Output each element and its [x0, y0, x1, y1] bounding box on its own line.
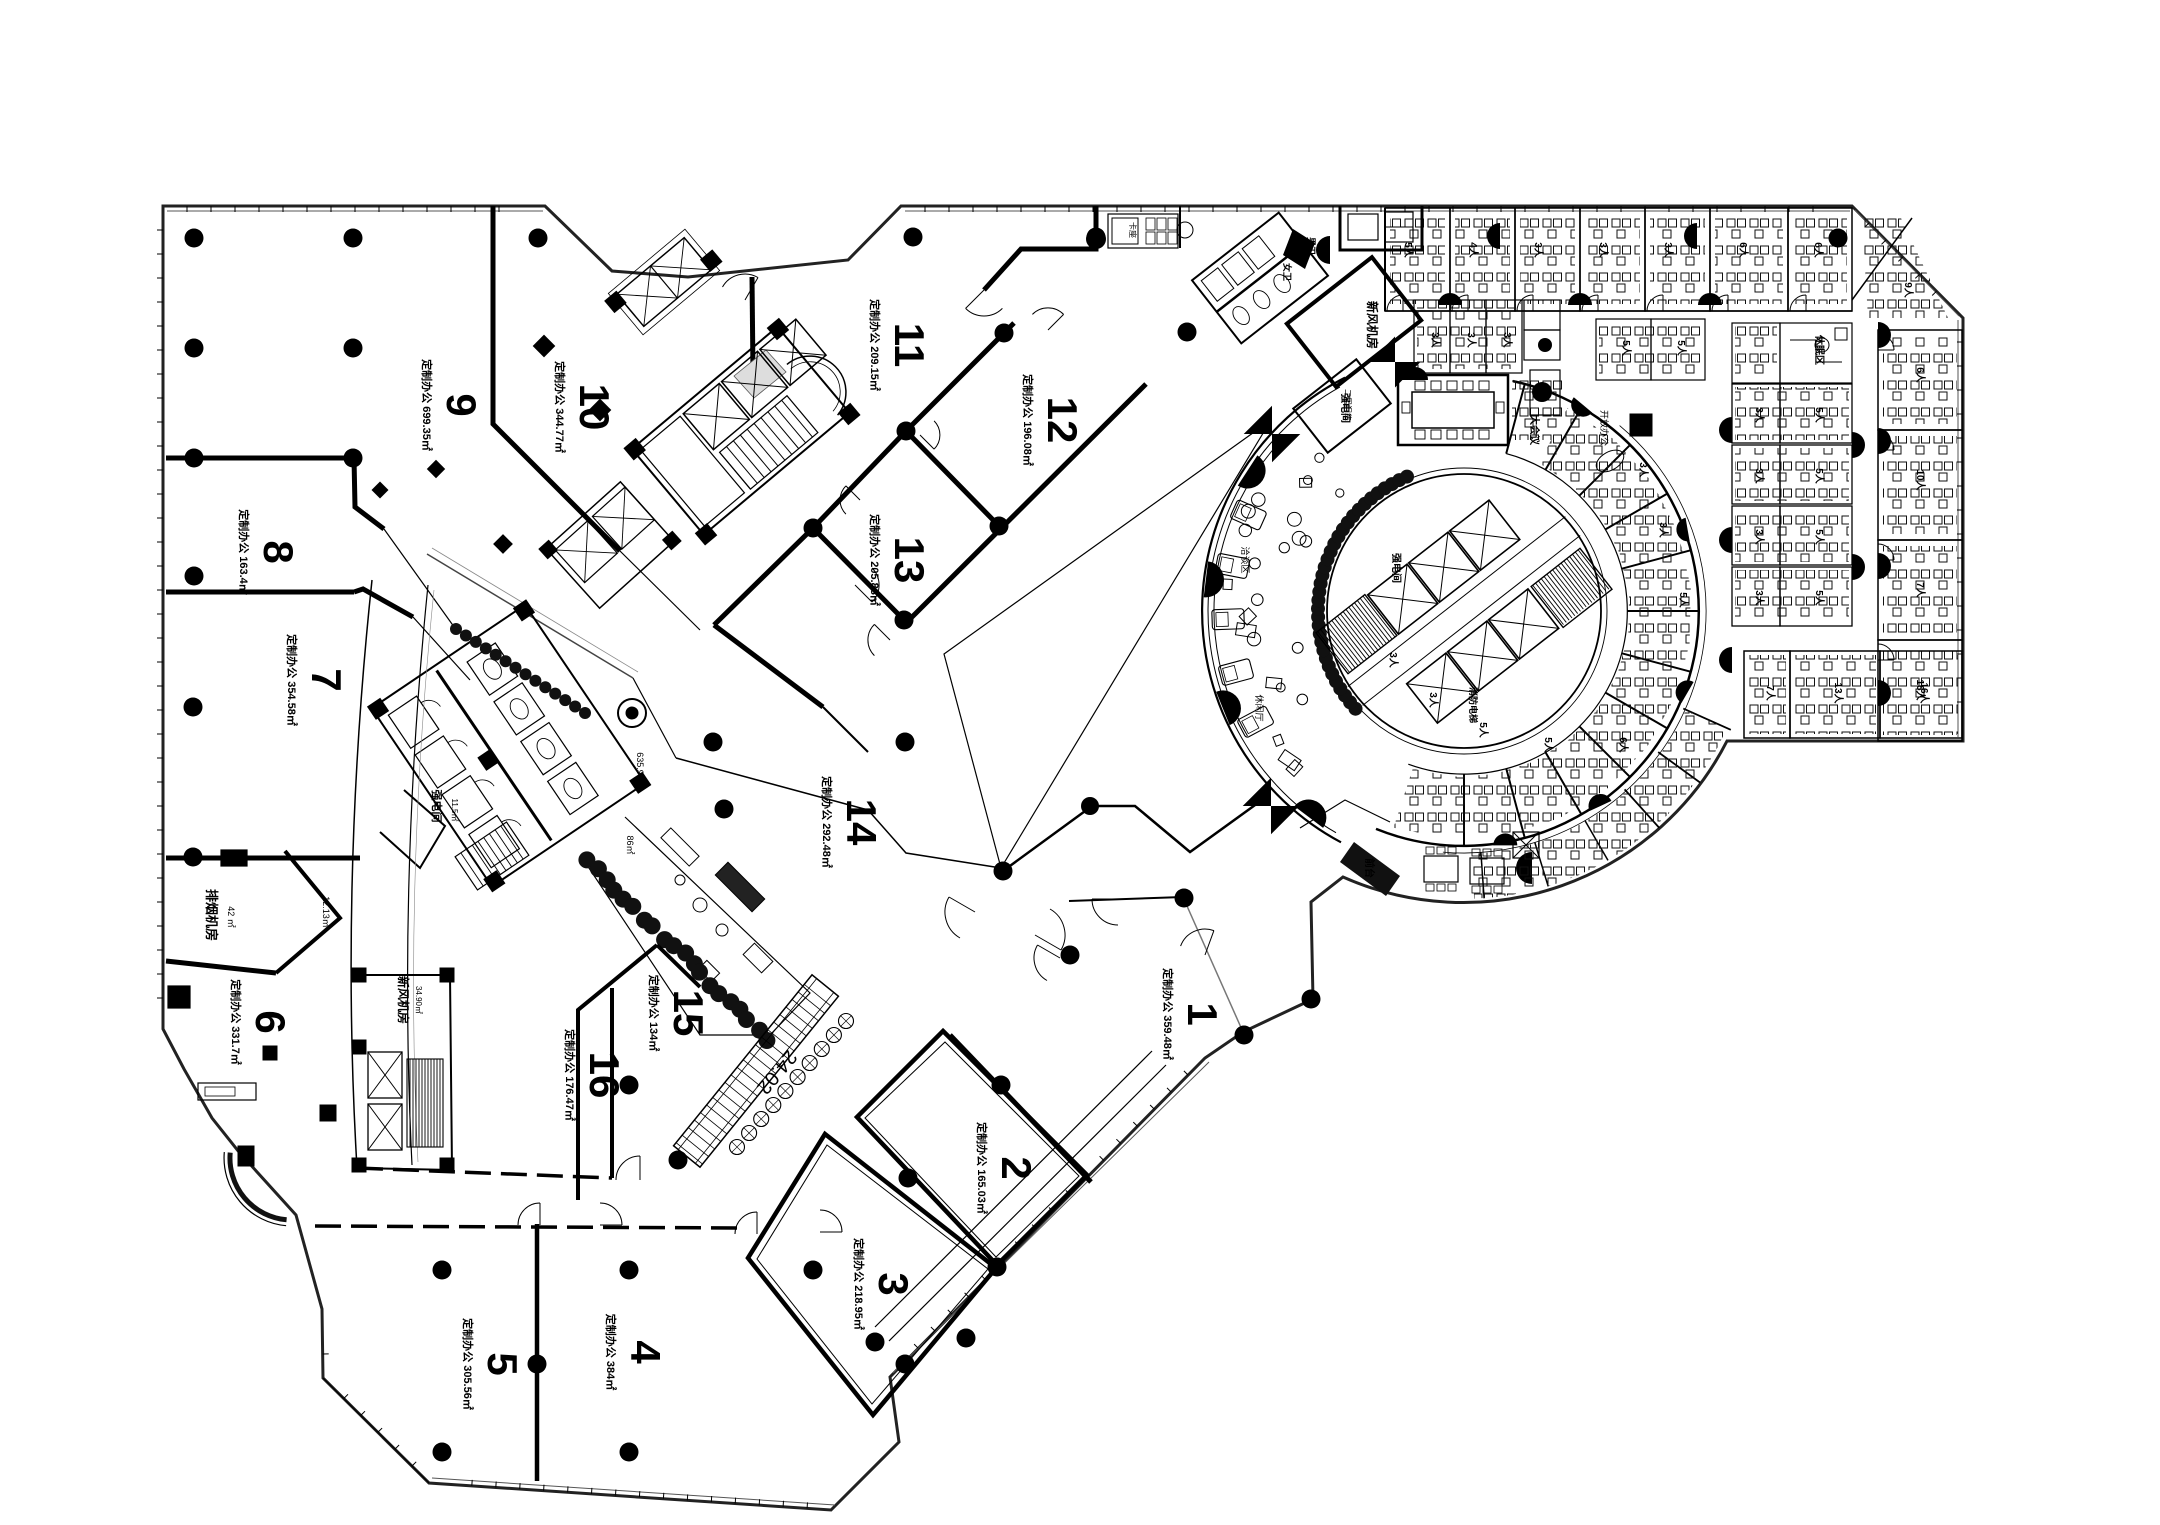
- svg-text:定制办公 209.15㎡: 定制办公 209.15㎡: [868, 299, 882, 391]
- svg-text:3人: 3人: [1662, 242, 1675, 259]
- svg-text:7: 7: [303, 668, 350, 691]
- svg-text:7人: 7人: [1764, 685, 1777, 702]
- svg-text:3人: 3人: [1753, 468, 1766, 485]
- svg-text:洽谈区: 洽谈区: [1240, 546, 1251, 573]
- svg-text:6人: 6人: [1617, 737, 1630, 754]
- svg-text:7人: 7人: [1914, 582, 1927, 599]
- svg-text:5人: 5人: [1677, 592, 1690, 609]
- svg-text:5人: 5人: [1813, 407, 1826, 424]
- svg-text:3人: 3人: [1597, 242, 1610, 259]
- svg-text:3人: 3人: [1427, 692, 1440, 709]
- svg-text:3: 3: [870, 1272, 917, 1295]
- svg-text:16人: 16人: [1918, 682, 1931, 704]
- svg-text:强电间: 强电间: [1390, 553, 1403, 583]
- svg-text:13: 13: [886, 537, 933, 584]
- svg-text:女卫: 女卫: [1282, 263, 1293, 281]
- svg-text:5人: 5人: [1675, 340, 1688, 357]
- svg-text:消防电梯: 消防电梯: [1468, 687, 1479, 723]
- svg-text:10: 10: [571, 384, 618, 431]
- svg-text:二层门隼: 二层门隼: [1343, 389, 1353, 421]
- svg-text:3人: 3人: [1753, 590, 1766, 607]
- svg-text:9人: 9人: [1902, 282, 1915, 299]
- svg-text:1: 1: [1179, 1002, 1226, 1025]
- svg-text:定制办公 205.88㎡: 定制办公 205.88㎡: [868, 514, 882, 606]
- svg-text:新风机房: 新风机房: [396, 976, 411, 1024]
- svg-text:定制办公 196.08㎡: 定制办公 196.08㎡: [1021, 374, 1035, 466]
- svg-text:前台: 前台: [1363, 858, 1376, 878]
- svg-text:2: 2: [993, 1156, 1040, 1179]
- svg-text:定制办公 292.48㎡: 定制办公 292.48㎡: [820, 776, 834, 868]
- svg-text:5人: 5人: [1620, 340, 1633, 357]
- svg-text:定制办公 359.48㎡: 定制办公 359.48㎡: [1161, 968, 1175, 1060]
- svg-text:3人: 3人: [1532, 242, 1545, 259]
- svg-text:12.13㎡: 12.13㎡: [321, 896, 331, 928]
- svg-text:5人: 5人: [1813, 590, 1826, 607]
- svg-text:5人: 5人: [1813, 529, 1826, 546]
- svg-text:5人: 5人: [1542, 737, 1555, 754]
- svg-text:3人: 3人: [1753, 529, 1766, 546]
- svg-text:定制办公 354.58㎡: 定制办公 354.58㎡: [285, 634, 299, 726]
- svg-text:定制办公 218.95㎡: 定制办公 218.95㎡: [852, 1238, 866, 1330]
- svg-text:4: 4: [622, 1340, 669, 1364]
- svg-text:男卫: 男卫: [1306, 237, 1316, 255]
- svg-text:定制办公 344.77㎡: 定制办公 344.77㎡: [553, 361, 567, 453]
- svg-text:42 ㎡: 42 ㎡: [226, 906, 236, 928]
- svg-text:15: 15: [665, 990, 712, 1037]
- svg-text:强电间: 强电间: [430, 790, 444, 823]
- svg-text:定制办公 305.56㎡: 定制办公 305.56㎡: [461, 1318, 475, 1410]
- svg-text:5: 5: [479, 1352, 526, 1375]
- svg-text:定制办公 134㎡: 定制办公 134㎡: [647, 975, 661, 1051]
- svg-text:6: 6: [247, 1010, 294, 1033]
- svg-text:定制办公 699.35㎡: 定制办公 699.35㎡: [420, 359, 434, 451]
- svg-text:休闲厅: 休闲厅: [1254, 694, 1265, 721]
- svg-text:休眠区: 休眠区: [1813, 334, 1826, 365]
- svg-text:10人: 10人: [1914, 469, 1927, 491]
- svg-text:4人: 4人: [1467, 242, 1480, 259]
- svg-text:定制办公 384㎡: 定制办公 384㎡: [604, 1314, 618, 1390]
- svg-text:14: 14: [838, 799, 885, 846]
- svg-text:5人: 5人: [1813, 468, 1826, 485]
- svg-text:开放办公: 开放办公: [1599, 410, 1610, 446]
- svg-text:9: 9: [438, 393, 485, 416]
- svg-text:3人: 3人: [1657, 522, 1670, 539]
- svg-text:新风机房: 新风机房: [1365, 301, 1380, 349]
- svg-text:635.9㎡: 635.9㎡: [635, 752, 645, 784]
- svg-text:11.5㎡: 11.5㎡: [450, 799, 459, 822]
- svg-text:8: 8: [255, 540, 302, 563]
- svg-text:排烟机房: 排烟机房: [204, 889, 219, 941]
- svg-text:定制办公 331.7㎡: 定制办公 331.7㎡: [229, 979, 243, 1065]
- svg-text:3人: 3人: [1501, 332, 1514, 349]
- svg-text:定制办公 163.4㎡: 定制办公 163.4㎡: [237, 509, 251, 595]
- svg-text:卡座: 卡座: [1128, 222, 1138, 238]
- svg-text:定制办公 176.47㎡: 定制办公 176.47㎡: [563, 1029, 577, 1121]
- svg-text:6人: 6人: [1737, 242, 1750, 259]
- svg-text:34.90㎡: 34.90㎡: [414, 986, 423, 1014]
- svg-text:3人: 3人: [1637, 462, 1650, 479]
- svg-text:13人: 13人: [1832, 682, 1845, 704]
- svg-text:定制办公 165.03㎡: 定制办公 165.03㎡: [975, 1122, 989, 1214]
- svg-text:3人: 3人: [1465, 332, 1478, 349]
- svg-text:12: 12: [1039, 397, 1086, 444]
- svg-text:11: 11: [886, 323, 933, 367]
- svg-text:3人: 3人: [1753, 407, 1766, 424]
- svg-text:6人: 6人: [1914, 367, 1927, 384]
- svg-text:5人: 5人: [1477, 722, 1490, 739]
- svg-text:5人: 5人: [1402, 242, 1415, 259]
- svg-text:大会议: 大会议: [1528, 415, 1541, 446]
- svg-text:16: 16: [581, 1052, 628, 1099]
- svg-text:86㎡: 86㎡: [625, 835, 635, 854]
- svg-text:6人: 6人: [1812, 242, 1825, 259]
- svg-text:3人: 3人: [1387, 652, 1400, 669]
- svg-text:3人: 3人: [1429, 332, 1442, 349]
